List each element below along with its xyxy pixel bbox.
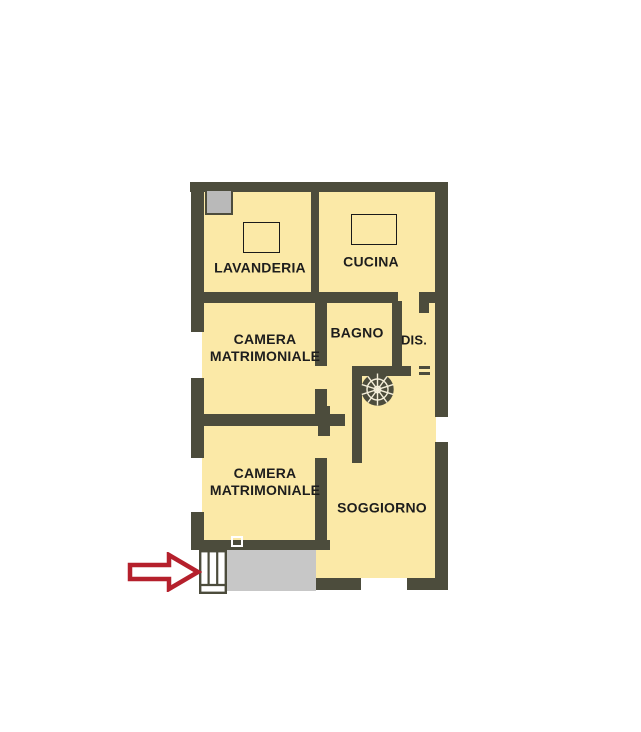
wall-right-lower: [435, 442, 448, 590]
room-label-text: LAVANDERIA: [214, 260, 306, 277]
spiral-staircase-icon: [360, 372, 395, 407]
room-label-lavanderia: LAVANDERIA: [214, 260, 306, 277]
entrance-arrow-icon: [126, 552, 202, 592]
room-label-disimpegno: DIS.: [401, 332, 427, 349]
room-label-soggiorno: SOGGIORNO: [337, 500, 427, 517]
wall-lavanderia-cucina: [311, 190, 319, 294]
appliance-box: [205, 189, 233, 215]
wall-soggiorno-bottom-left: [313, 578, 361, 590]
room-label-cucina: CUCINA: [343, 254, 399, 271]
wall-dis-door-tick-top: [419, 366, 430, 369]
room-label-text: CAMERA: [210, 331, 320, 348]
room-label-text: MATRIMONIALE: [210, 482, 320, 499]
room-label-text: BAGNO: [330, 325, 383, 342]
wall-soggiorno-bottom-right: [407, 578, 448, 590]
wall-dis-stub: [419, 292, 429, 313]
room-area-soggiorno-lower: [315, 540, 436, 578]
room-label-text: SOGGIORNO: [337, 500, 427, 517]
terrace-area: [227, 550, 316, 591]
door-marker-square: [231, 536, 243, 547]
room-label-bagno: BAGNO: [330, 325, 383, 342]
wall-camera2-bottom: [191, 540, 330, 550]
room-label-text: DIS.: [401, 332, 427, 349]
floor-plan: LAVANDERIA CUCINA CAMERA MATRIMONIALE BA…: [0, 0, 641, 732]
wall-left-upper: [191, 182, 204, 332]
room-label-camera-matrimoniale-2: CAMERA MATRIMONIALE: [210, 465, 320, 499]
room-label-camera-matrimoniale-1: CAMERA MATRIMONIALE: [210, 331, 320, 365]
room-label-text: CUCINA: [343, 254, 399, 271]
wall-camera2-cap: [318, 406, 330, 436]
room-label-text: MATRIMONIALE: [210, 348, 320, 365]
wall-dis-door-tick-bottom: [419, 372, 430, 375]
entry-steps-icon: [199, 550, 228, 595]
table-lavanderia: [243, 222, 280, 253]
room-label-text: CAMERA: [210, 465, 320, 482]
table-cucina: [351, 214, 397, 245]
wall-divider-upper: [191, 292, 398, 303]
